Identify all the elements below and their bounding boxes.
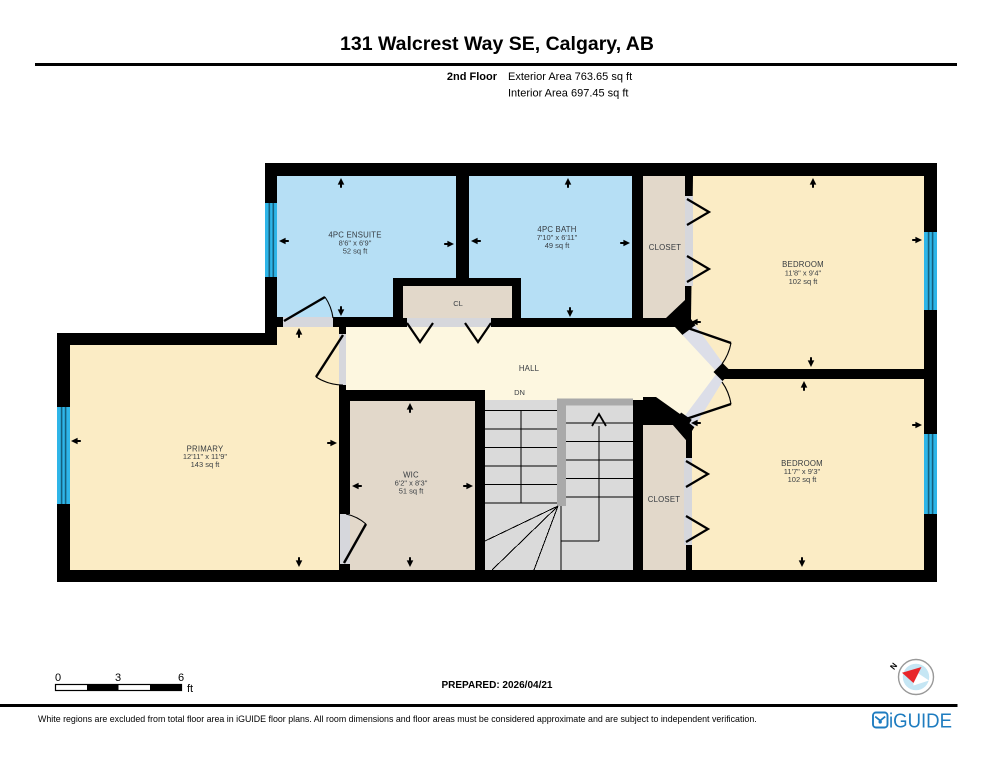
svg-text:102 sq ft: 102 sq ft bbox=[789, 277, 819, 286]
svg-text:DN: DN bbox=[514, 388, 525, 397]
svg-text:CLOSET: CLOSET bbox=[648, 495, 680, 504]
svg-text:0: 0 bbox=[55, 672, 61, 684]
svg-text:143 sq ft: 143 sq ft bbox=[191, 460, 221, 469]
svg-text:3: 3 bbox=[115, 672, 121, 684]
svg-text:CL: CL bbox=[453, 299, 463, 308]
svg-text:ft: ft bbox=[187, 683, 193, 695]
svg-text:49 sq ft: 49 sq ft bbox=[545, 241, 571, 250]
svg-text:CLOSET: CLOSET bbox=[649, 243, 681, 252]
svg-text:102 sq ft: 102 sq ft bbox=[788, 475, 818, 484]
svg-text:131 Walcrest Way SE, Calgary,: 131 Walcrest Way SE, Calgary, AB bbox=[340, 33, 654, 55]
svg-text:51 sq ft: 51 sq ft bbox=[399, 487, 425, 496]
svg-text:Interior Area 697.45 sq ft: Interior Area 697.45 sq ft bbox=[508, 88, 628, 100]
svg-text:PREPARED: 2026/04/21: PREPARED: 2026/04/21 bbox=[442, 680, 553, 691]
svg-text:6: 6 bbox=[178, 672, 184, 684]
svg-text:iGUIDE: iGUIDE bbox=[889, 710, 952, 733]
svg-text:2nd Floor: 2nd Floor bbox=[447, 71, 498, 83]
svg-text:52 sq ft: 52 sq ft bbox=[343, 247, 369, 256]
svg-text:White regions are excluded fro: White regions are excluded from total fl… bbox=[38, 714, 757, 724]
svg-text:Exterior Area 763.65 sq ft: Exterior Area 763.65 sq ft bbox=[508, 71, 632, 83]
svg-text:HALL: HALL bbox=[519, 364, 540, 373]
